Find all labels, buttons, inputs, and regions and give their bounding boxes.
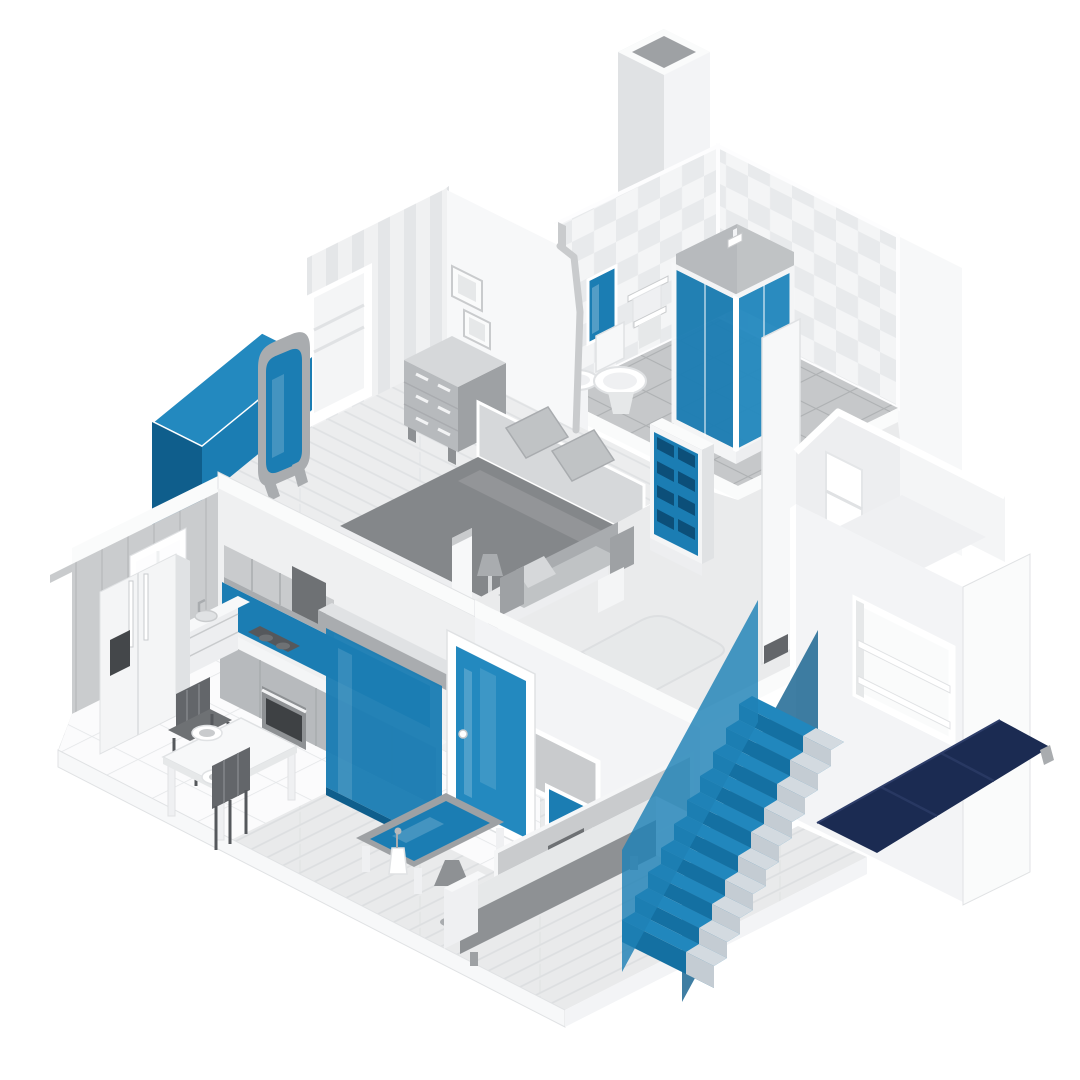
burner [259, 635, 273, 642]
bookshelf-side [702, 444, 714, 564]
plate-bowl [199, 729, 215, 737]
sofa-leg [470, 952, 478, 966]
kitchen-sink [195, 611, 217, 622]
mirror-reflection [592, 284, 599, 334]
standing-mirror [258, 332, 310, 501]
door-handle [459, 730, 467, 738]
table-leg [168, 764, 175, 816]
vase [389, 848, 407, 874]
mirror-reflection [272, 374, 284, 458]
door-reflection [480, 668, 496, 790]
illustration-stage [0, 0, 1080, 1080]
table-leg [362, 846, 370, 872]
house-cutaway-illustration [0, 0, 1080, 1080]
toilet-seat [603, 373, 637, 390]
fridge-handle [144, 574, 148, 640]
bookshelf [650, 418, 714, 576]
flower-bud [395, 828, 402, 835]
left-wall-cut-face [50, 564, 72, 725]
table-leg [414, 868, 422, 894]
shower-corner-post [733, 295, 739, 455]
partition-reflection [338, 648, 352, 812]
burner [276, 643, 290, 650]
